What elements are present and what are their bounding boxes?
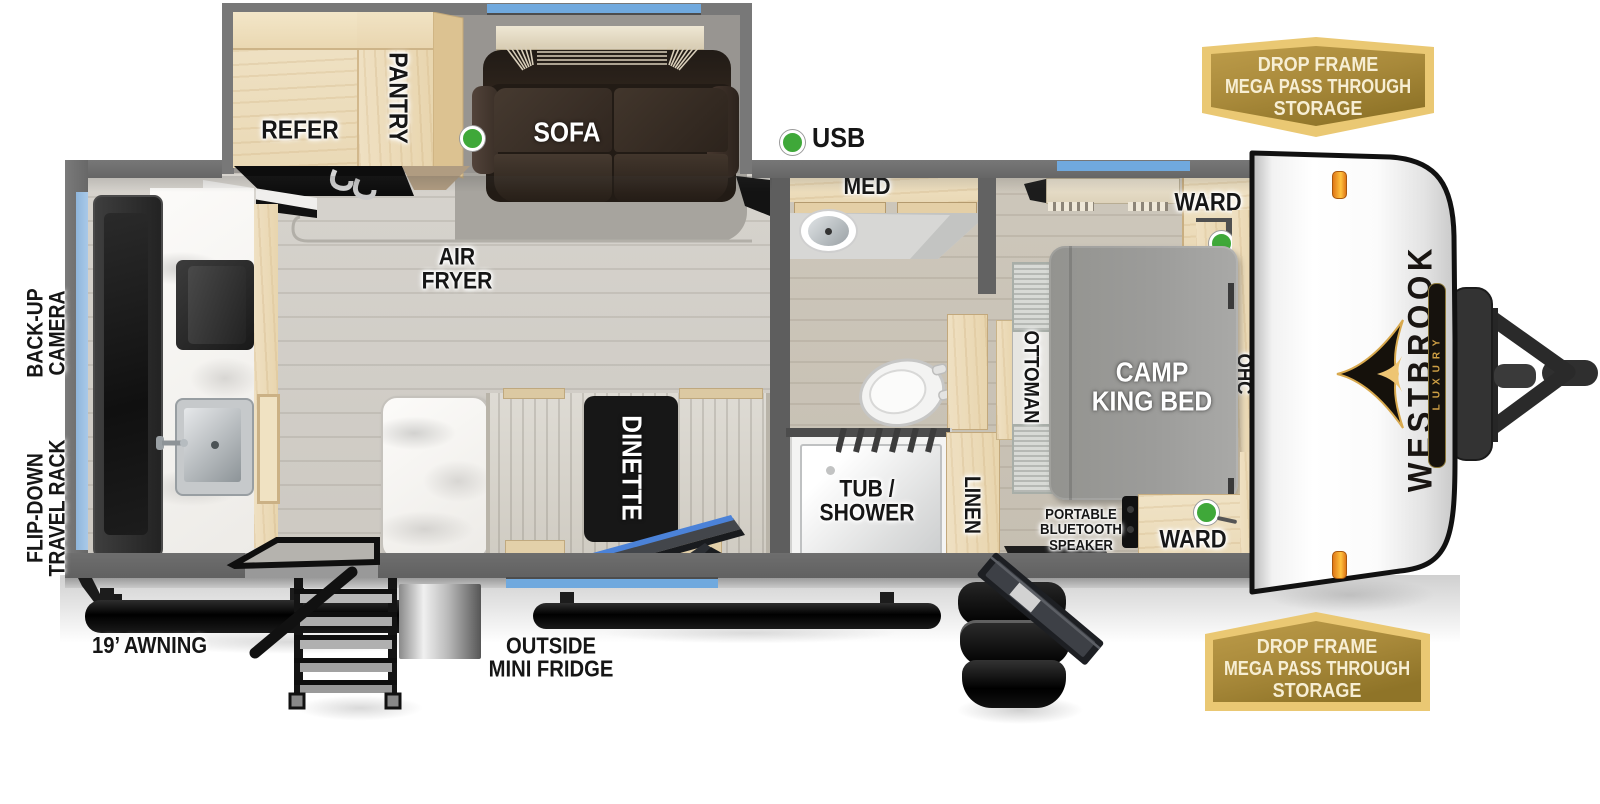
svg-text:DROP FRAME: DROP FRAME — [1257, 636, 1378, 658]
svg-text:STORAGE: STORAGE — [1273, 680, 1362, 702]
svg-text:MEGA PASS THROUGH: MEGA PASS THROUGH — [1225, 75, 1411, 98]
svg-text:STORAGE: STORAGE — [1274, 98, 1363, 120]
svg-text:MEGA PASS THROUGH: MEGA PASS THROUGH — [1224, 657, 1410, 680]
svg-text:DROP FRAME: DROP FRAME — [1258, 54, 1379, 76]
